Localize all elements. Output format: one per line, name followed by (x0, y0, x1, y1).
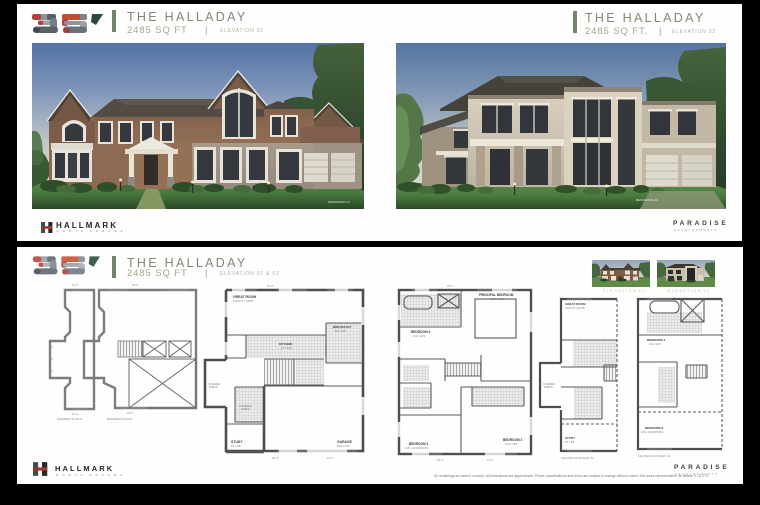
svg-text:11'8 x 11'4/13'0/15'1: 11'8 x 11'4/13'0/15'1 (641, 431, 664, 434)
svg-text:14'0/17'1 x 24'/25': 14'0/17'1 x 24'/25' (233, 299, 254, 303)
svg-text:PRINCIPAL BEDROOM: PRINCIPAL BEDROOM (479, 293, 514, 297)
svg-text:PORCH: PORCH (241, 407, 250, 411)
svg-text:BEDROOM 4: BEDROOM 4 (411, 330, 431, 334)
svg-text:18'-6": 18'-6" (437, 458, 444, 462)
svg-text:8'7 x 9'8: 8'7 x 9'8 (565, 441, 575, 444)
svg-text:11'2 x 12'2: 11'2 x 12'2 (413, 334, 426, 338)
svg-text:RENDERING 01: RENDERING 01 (328, 200, 351, 204)
svg-text:11'2 x 12'2: 11'2 x 12'2 (649, 343, 661, 346)
svg-text:35'-0": 35'-0" (132, 283, 139, 287)
svg-text:12' x 12'0: 12' x 12'0 (281, 346, 292, 350)
svg-text:GREAT ROOM: GREAT ROOM (233, 295, 256, 299)
svg-text:18'4 x 20'2: 18'4 x 20'2 (337, 444, 350, 448)
svg-text:GROUND FLOOR ELEV. 02: GROUND FLOOR ELEV. 02 (561, 456, 594, 460)
svg-text:PORCH: PORCH (544, 386, 553, 389)
svg-text:BASEMENT PLAN 02: BASEMENT PLAN 02 (107, 417, 133, 421)
svg-text:KITCHEN: KITCHEN (279, 342, 292, 346)
svg-text:BEDROOM 2: BEDROOM 2 (503, 438, 523, 442)
svg-text:35'-0": 35'-0" (267, 284, 274, 288)
svg-text:18'-6": 18'-6" (127, 411, 134, 415)
svg-text:8'7 x 9'8: 8'7 x 9'8 (231, 444, 241, 448)
svg-text:GARAGE: GARAGE (337, 440, 353, 444)
svg-text:12'-0": 12'-0" (72, 283, 79, 287)
svg-text:BEDROOM 3: BEDROOM 3 (645, 426, 664, 430)
svg-text:11'8 x 11'4/13'0/15'1: 11'8 x 11'4/13'0/15'1 (405, 446, 429, 450)
svg-text:14'-2": 14'-2" (327, 456, 334, 460)
svg-text:BREAKFAST: BREAKFAST (333, 325, 352, 329)
svg-text:STUDY: STUDY (231, 440, 243, 444)
svg-text:10' x 13'0: 10' x 13'0 (335, 329, 346, 333)
svg-text:GREAT ROOM: GREAT ROOM (565, 302, 586, 306)
svg-text:12'-4": 12'-4" (72, 412, 79, 416)
svg-text:STUDY: STUDY (565, 436, 575, 440)
svg-text:16'-0": 16'-0" (487, 458, 494, 462)
svg-text:14'0/17'1 x 24'/25': 14'0/17'1 x 24'/25' (565, 307, 585, 310)
svg-text:11'0 x 13'0: 11'0 x 13'0 (505, 442, 518, 446)
svg-text:BEDROOM 3: BEDROOM 3 (409, 442, 429, 446)
svg-text:BASEMENT PLAN 01: BASEMENT PLAN 01 (57, 417, 83, 421)
svg-text:SECOND FLOOR ELEV. 02: SECOND FLOOR ELEV. 02 (638, 454, 671, 458)
svg-text:13'0 x 17'0: 13'0 x 17'0 (491, 297, 504, 301)
svg-text:20'-4": 20'-4" (272, 456, 279, 460)
svg-text:RENDERING 02: RENDERING 02 (636, 198, 659, 202)
svg-text:BEDROOM 4: BEDROOM 4 (647, 338, 666, 342)
svg-text:PORCH: PORCH (209, 386, 218, 389)
svg-text:35'-0": 35'-0" (447, 284, 454, 288)
